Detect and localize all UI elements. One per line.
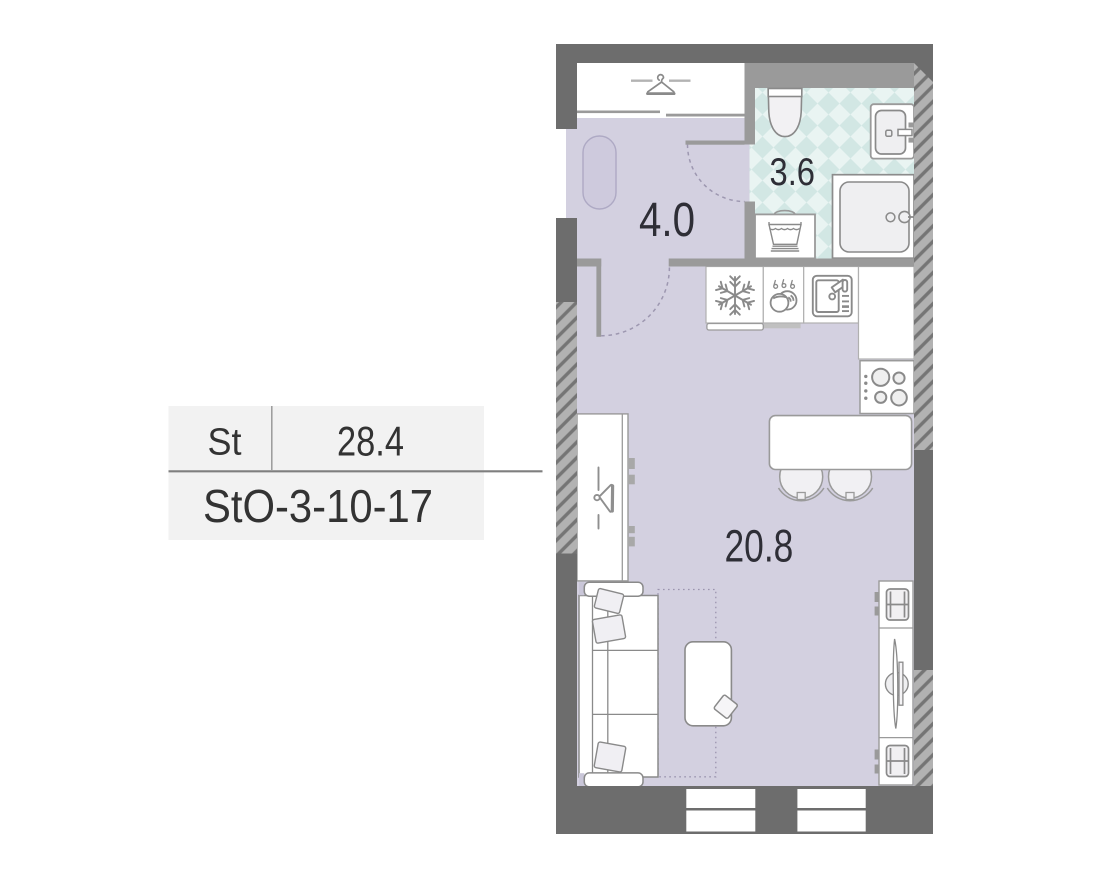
svg-text:20.8: 20.8	[725, 521, 794, 572]
svg-text:4.0: 4.0	[639, 194, 695, 247]
svg-text:StO-3-10-17: StO-3-10-17	[203, 480, 433, 532]
svg-text:28.4: 28.4	[337, 418, 404, 465]
svg-text:3.6: 3.6	[770, 151, 816, 194]
svg-text:St: St	[208, 422, 242, 464]
